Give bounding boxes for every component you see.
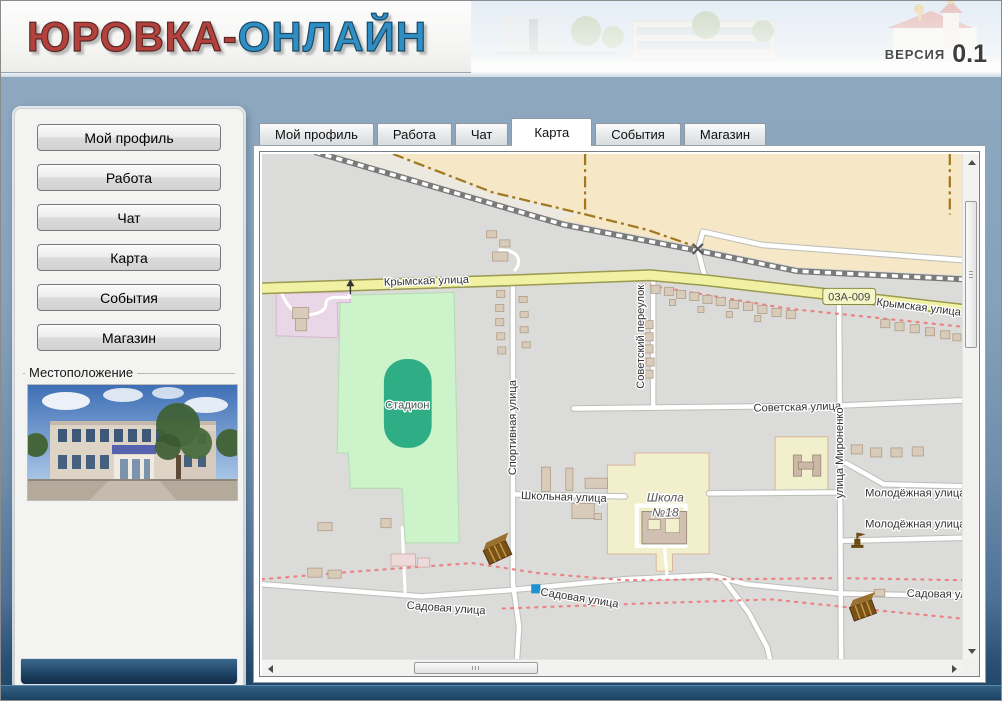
arrow-left-icon: [264, 665, 273, 673]
tab-chat[interactable]: Чат: [455, 123, 509, 145]
tab-events[interactable]: События: [595, 123, 681, 145]
version-indicator: ВЕРСИЯ 0.1: [885, 43, 987, 65]
main-area: Мой профиль Работа Чат Карта События Маг…: [253, 117, 986, 683]
place-label-school-1: Школа: [647, 490, 684, 504]
version-number: 0.1: [952, 43, 987, 65]
bottom-bar: [1, 685, 1001, 700]
map-canvas[interactable]: 03А-009 Крымская улица Крымская улица Со…: [262, 154, 962, 659]
location-photo: [27, 384, 238, 501]
road-ref-label: 03А-009: [828, 291, 870, 303]
map-vertical-scrollbar[interactable]: [962, 154, 979, 659]
scrollbar-corner: [962, 659, 979, 676]
sidebar-button-events[interactable]: События: [37, 284, 221, 311]
app-title-blue: ОНЛАЙН: [238, 13, 427, 60]
version-label: ВЕРСИЯ: [885, 47, 945, 65]
vertical-scroll-thumb[interactable]: [965, 201, 977, 348]
arrow-right-icon: [952, 665, 961, 673]
sidebar-button-chat[interactable]: Чат: [37, 204, 221, 231]
street-label-sovetsky-pereulok: Советский переулок: [635, 285, 647, 389]
map-viewport[interactable]: 03А-009 Крымская улица Крымская улица Со…: [262, 154, 962, 659]
street-label-mironenko: улица Мироненко: [834, 408, 846, 499]
scroll-right-button[interactable]: [946, 660, 962, 677]
sidebar-button-shop[interactable]: Магазин: [37, 324, 221, 351]
map-widget: 03А-009 Крымская улица Крымская улица Со…: [262, 154, 979, 676]
map-frame: 03А-009 Крымская улица Крымская улица Со…: [259, 151, 980, 677]
header-divider: [1, 73, 1001, 77]
tab-shop[interactable]: Магазин: [684, 123, 766, 145]
sidebar-button-profile[interactable]: Мой профиль: [37, 124, 221, 151]
scroll-left-button[interactable]: [262, 660, 278, 677]
street-label-sadovaya-e: Садовая ул: [907, 588, 962, 601]
location-group: Местоположение: [23, 373, 235, 501]
scroll-up-button[interactable]: [963, 154, 980, 170]
sidebar: Мой профиль Работа Чат Карта События Маг…: [14, 108, 244, 691]
street-label-sovetskaya: Советская улица: [753, 400, 842, 414]
sidebar-footer: [20, 658, 238, 685]
arrow-down-icon: [968, 649, 976, 658]
sidebar-button-work[interactable]: Работа: [37, 164, 221, 191]
tab-profile[interactable]: Мой профиль: [259, 123, 374, 145]
map-tab-panel: 03А-009 Крымская улица Крымская улица Со…: [253, 145, 986, 683]
tab-map[interactable]: Карта: [511, 118, 592, 146]
app-window: ЮРОВКА-ОНЛАЙН ВЕРСИЯ 0.1 Мой профиль Раб…: [0, 0, 1002, 701]
scroll-down-button[interactable]: [963, 643, 980, 659]
street-label-molodezhnaya-1: Молодёжная улица: [865, 487, 962, 499]
road-ref-badge: 03А-009: [823, 288, 876, 304]
tab-work[interactable]: Работа: [377, 123, 452, 145]
place-label-school-2: №18: [652, 506, 679, 520]
map-horizontal-scrollbar[interactable]: [262, 659, 962, 676]
arrow-up-icon: [968, 156, 976, 165]
street-label-sportivnaya: Спортивная улица: [507, 379, 519, 475]
app-title: ЮРОВКА-ОНЛАЙН: [27, 13, 427, 61]
street-label-molodezhnaya-2: Молодёжная улица: [865, 519, 962, 531]
location-label: Местоположение: [25, 365, 137, 380]
app-title-red: ЮРОВКА-: [27, 13, 238, 60]
blue-square-marker: [531, 584, 540, 593]
horizontal-scroll-thumb[interactable]: [414, 662, 538, 674]
sidebar-button-map[interactable]: Карта: [37, 244, 221, 271]
header: ЮРОВКА-ОНЛАЙН ВЕРСИЯ 0.1: [1, 1, 1001, 73]
place-label-stadium: Стадион: [385, 400, 429, 412]
tab-bar: Мой профиль Работа Чат Карта События Маг…: [253, 117, 986, 145]
